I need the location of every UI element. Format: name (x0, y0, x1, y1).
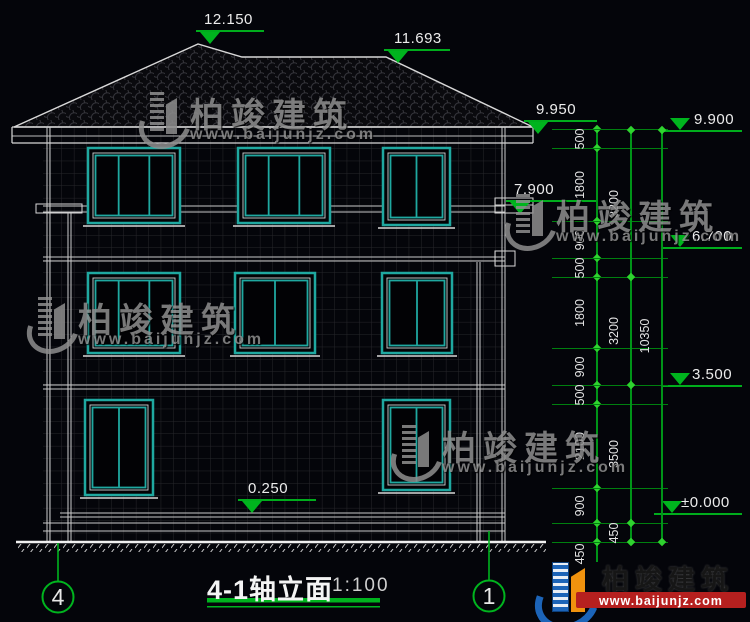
dimension-value: 900 (573, 495, 587, 516)
dimension-value: 450 (607, 522, 621, 543)
dimension-value: 500 (573, 384, 587, 405)
watermark: 柏竣建筑www.baijunjz.com (28, 293, 258, 353)
elevation-value: 0.250 (248, 480, 288, 497)
dimension-extension-line (552, 129, 668, 130)
dimension-value: 10350 (638, 319, 652, 354)
elevation-triangle-icon (528, 122, 548, 134)
watermark: 柏竣建筑www.baijunjz.com (140, 88, 370, 148)
elevation-value: ±0.000 (681, 494, 730, 511)
dimension-value: 900 (573, 356, 587, 377)
elevation-value: 3.500 (692, 366, 732, 383)
watermark: 柏竣建筑www.baijunjz.com (506, 190, 736, 250)
watermark-logo-icon (506, 192, 550, 242)
dimension-tick (627, 273, 635, 281)
dimension-extension-line (552, 277, 668, 278)
elevation-line (662, 130, 742, 132)
elevation-value: 9.900 (694, 111, 734, 128)
elevation-triangle-icon (200, 32, 220, 44)
dimension-extension-line (552, 404, 668, 405)
elevation-line (654, 513, 742, 515)
company-logo: 柏竣建筑 www.baijunjz.com (536, 556, 750, 620)
watermark-url: www.baijunjz.com (442, 459, 628, 477)
elevation-value: 9.950 (536, 101, 576, 118)
watermark-logo-icon (140, 90, 184, 140)
dimension-tick (627, 381, 635, 389)
elevation-line (662, 385, 742, 387)
watermark-logo-icon (28, 295, 72, 345)
dimension-tick (627, 538, 635, 546)
dimension-extension-line (552, 488, 668, 489)
annotations-layer: 12.15011.6939.9509.9007.9006.7003.500±0.… (0, 0, 750, 622)
axis-number-1: 1 (469, 583, 509, 610)
drawing-scale: 1:100 (332, 575, 390, 597)
dimension-value: 500 (573, 257, 587, 278)
company-logo-icon (538, 560, 600, 618)
elevation-triangle-icon (662, 501, 682, 513)
watermark: 柏竣建筑www.baijunjz.com (392, 421, 622, 481)
dimension-value: 3200 (607, 317, 621, 345)
elevation-value: 11.693 (394, 30, 442, 47)
dimension-value: 500 (573, 128, 587, 149)
dimension-tick (627, 126, 635, 134)
dimension-tick (627, 519, 635, 527)
company-url-bar: www.baijunjz.com (576, 592, 746, 608)
watermark-logo-icon (392, 423, 436, 473)
watermark-url: www.baijunjz.com (78, 331, 264, 349)
axis-number-4: 4 (38, 584, 78, 611)
dimension-extension-line (552, 258, 668, 259)
company-url: www.baijunjz.com (599, 594, 723, 608)
dimension-value: 1800 (573, 299, 587, 327)
dimension-tick (658, 538, 666, 546)
elevation-drawing: 12.15011.6939.9509.9007.9006.7003.500±0.… (0, 0, 750, 622)
elevation-triangle-icon (670, 373, 690, 385)
watermark-url: www.baijunjz.com (556, 228, 742, 246)
elevation-triangle-icon (388, 51, 408, 63)
watermark-url: www.baijunjz.com (190, 126, 376, 144)
elevation-triangle-icon (670, 118, 690, 130)
dimension-tick (658, 126, 666, 134)
dimension-extension-line (552, 385, 668, 386)
dimension-extension-line (552, 148, 668, 149)
elevation-triangle-icon (242, 501, 262, 513)
elevation-value: 12.150 (204, 11, 253, 28)
drawing-title: 4-1轴立面 (207, 568, 333, 607)
